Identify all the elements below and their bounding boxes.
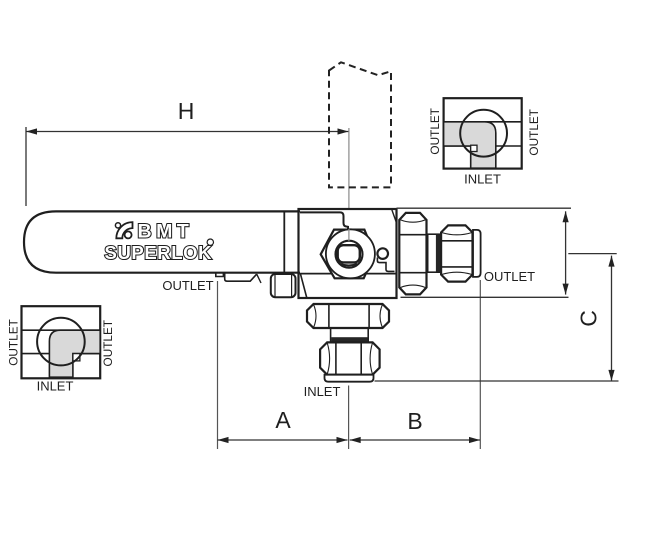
svg-text:B: B <box>407 408 422 434</box>
svg-text:OUTLET: OUTLET <box>527 109 541 156</box>
svg-text:BMT: BMT <box>138 221 194 243</box>
svg-text:OUTLET: OUTLET <box>484 269 535 284</box>
svg-text:OUTLET: OUTLET <box>101 320 115 367</box>
svg-text:OUTLET: OUTLET <box>428 108 442 155</box>
svg-text:OUTLET: OUTLET <box>162 278 213 293</box>
svg-text:SUPERLOK: SUPERLOK <box>105 242 213 263</box>
svg-text:H: H <box>178 98 195 124</box>
svg-text:INLET: INLET <box>304 384 341 399</box>
svg-text:A: A <box>275 407 291 433</box>
svg-text:C: C <box>576 310 602 327</box>
svg-text:INLET: INLET <box>464 172 501 187</box>
svg-text:INLET: INLET <box>37 379 74 394</box>
svg-text:OUTLET: OUTLET <box>7 319 21 366</box>
